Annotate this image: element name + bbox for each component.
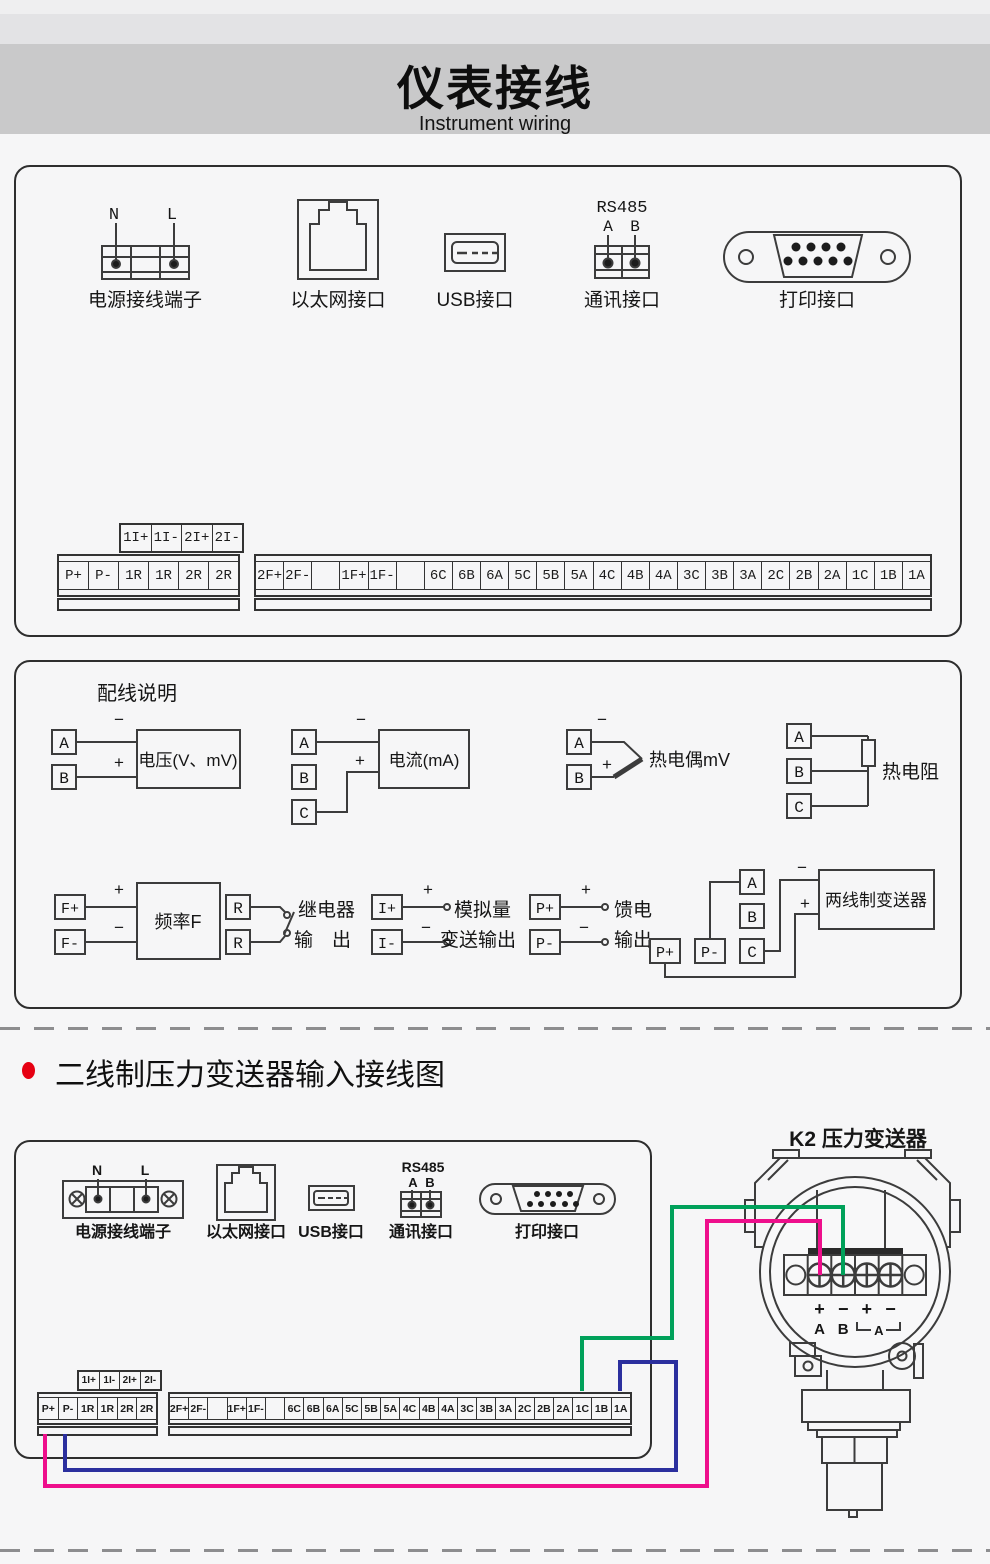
feed-label-1: 馈电 xyxy=(614,899,652,921)
terminal-cell: 1A xyxy=(903,562,930,589)
terminal-cell: P+ xyxy=(59,562,89,589)
terminal-cell: 4C xyxy=(594,562,622,589)
analog-label-2: 变送输出 xyxy=(440,929,516,951)
terminal-cell: 1F- xyxy=(369,562,397,589)
terminal-a-label: A xyxy=(814,1321,825,1338)
term-c: C xyxy=(747,944,757,962)
ethernet-icon xyxy=(217,1165,275,1220)
term-p-plus: P+ xyxy=(536,901,554,918)
terminal-cell: 6A xyxy=(324,1398,343,1419)
term-a: A xyxy=(574,735,584,753)
terminal-rail xyxy=(57,598,240,611)
terminal-cell: 2I+ xyxy=(182,525,213,551)
power-label: 电源接线端子 xyxy=(88,289,202,311)
panel-connectors: N L 电源接线端子 以太网接口 USB接口 RS485 xyxy=(14,165,962,637)
terminal-cell: 6C xyxy=(285,1398,304,1419)
terminal-cell: 2A xyxy=(554,1398,573,1419)
terminal-cell: 2R xyxy=(118,1398,138,1419)
terminal-cell: 1R xyxy=(98,1398,118,1419)
term-b: B xyxy=(59,770,69,788)
ethernet-label: 以太网接口 xyxy=(206,1222,286,1241)
page-header: 仪表接线 Instrument wiring xyxy=(0,44,990,134)
top-strip xyxy=(0,0,990,14)
plus-sign: + xyxy=(114,882,124,901)
terminal-cell: 6B xyxy=(304,1398,323,1419)
term-f-plus: F+ xyxy=(61,901,79,918)
diagram-two-wire-transmitter: A B C P+ P- − + 两线制变送器 xyxy=(650,860,934,977)
terminal-aux-row: 1I+1I-2I+2I- xyxy=(119,523,244,553)
diagram-voltage: A B − + 电压(V、mV) xyxy=(52,712,240,789)
terminal-cell: 2R xyxy=(137,1398,156,1419)
terminal-cell: 2I+ xyxy=(120,1372,141,1389)
terminal-cell: 3B xyxy=(706,562,734,589)
terminal-cell: 2F+ xyxy=(256,562,284,589)
minus-sign: − xyxy=(597,712,607,731)
terminal-cell: 2R xyxy=(209,562,238,589)
transmitter-title: K2 压力变送器 xyxy=(789,1127,928,1151)
section-heading: 二线制压力变送器输入接线图 xyxy=(55,1050,445,1094)
minus-sign: − xyxy=(114,712,124,731)
terminal-aux-row: 1I+1I-2I+2I- xyxy=(77,1370,162,1391)
terminal-cell: P- xyxy=(89,562,119,589)
diagram-current: A B C − + 电流(mA) xyxy=(292,712,469,824)
terminal-cell: 1R xyxy=(149,562,179,589)
ethernet-icon xyxy=(298,200,378,279)
plus-sign: + xyxy=(581,882,591,901)
page-subtitle: Instrument wiring xyxy=(0,113,990,136)
terminal-cell: 3A xyxy=(496,1398,515,1419)
terminal-plus-1: + xyxy=(814,1299,825,1319)
term-a: A xyxy=(747,875,757,893)
terminal-cell: 3C xyxy=(458,1398,477,1419)
wiring-guide-svg: 配线说明 A B − + 电压(V、mV) A B C − + 电流(mA) xyxy=(16,662,960,1007)
relay-label-2: 输 出 xyxy=(294,929,351,951)
terminal-cell: 3A xyxy=(734,562,762,589)
terminal-cell: 2B xyxy=(790,562,818,589)
term-p-plus: P+ xyxy=(656,945,674,962)
printer-label: 打印接口 xyxy=(515,1222,579,1241)
terminal-cell: 2A xyxy=(819,562,847,589)
terminal-cell: P- xyxy=(59,1398,79,1419)
terminal-cell: 2B xyxy=(535,1398,554,1419)
power-pin-l: L xyxy=(141,1162,150,1178)
diagram-analog-out: I+ I- + − 模拟量 变送输出 xyxy=(372,882,516,954)
terminal-minus-1: − xyxy=(838,1299,849,1319)
terminal-cell: 6C xyxy=(425,562,453,589)
terminal-block-left: P+P-1R1R2R2R xyxy=(37,1392,158,1436)
top-strip-2 xyxy=(0,14,990,44)
term-b: B xyxy=(794,764,804,782)
term-c: C xyxy=(299,805,309,823)
terminal-cell: 2I- xyxy=(213,525,243,551)
terminal-cell: 4B xyxy=(420,1398,439,1419)
usb-label: USB接口 xyxy=(298,1222,364,1241)
power-pin-n: N xyxy=(109,206,119,225)
printer-port-icon xyxy=(724,232,910,282)
terminal-cell xyxy=(312,562,340,589)
power-pin-l: L xyxy=(167,206,177,225)
pressure-transmitter: K2 压力变送器 + − + − A B A xyxy=(690,1118,990,1530)
comm-pin-b: B xyxy=(630,218,640,236)
transmitter-body xyxy=(745,1150,960,1247)
terminal-cell: 6A xyxy=(481,562,509,589)
term-b: B xyxy=(299,770,309,788)
diagram-feed-out: P+ P- + − 馈电 输出 xyxy=(530,882,652,954)
terminal-cell: 1I+ xyxy=(79,1372,100,1389)
terminal-plus-2: + xyxy=(862,1299,873,1319)
voltage-label: 电压(V、mV) xyxy=(138,751,237,770)
minus-sign: − xyxy=(797,860,807,879)
feed-label-2: 输出 xyxy=(614,929,652,951)
terminal-cell: 1I- xyxy=(152,525,183,551)
terminal-cell: 5B xyxy=(537,562,565,589)
relay-label-1: 继电器 xyxy=(298,899,355,921)
terminal-cell: 1R xyxy=(119,562,149,589)
terminal-cell: 1B xyxy=(875,562,903,589)
plus-sign: + xyxy=(114,755,124,774)
terminal-cell: 2F- xyxy=(284,562,312,589)
term-b: B xyxy=(747,909,757,927)
terminal-cell: 3B xyxy=(477,1398,496,1419)
minus-sign: − xyxy=(356,712,366,731)
power-terminal-icon: N L xyxy=(102,206,189,279)
terminal-cell: 5A xyxy=(381,1398,400,1419)
plus-sign: + xyxy=(602,757,612,776)
printer-label: 打印接口 xyxy=(779,289,855,311)
minus-sign: − xyxy=(114,920,124,939)
rs485-label: RS485 xyxy=(402,1159,445,1175)
plus-sign: + xyxy=(423,882,433,901)
terminal-cell: 2I- xyxy=(141,1372,161,1389)
term-f-minus: F- xyxy=(61,936,79,953)
transmitter-terminals: + − + − A B A xyxy=(784,1190,926,1338)
usb-label: USB接口 xyxy=(436,289,513,311)
minus-sign: − xyxy=(421,920,431,939)
panel-recorder: N L 电源接线端子 以太网接口 USB接口 xyxy=(14,1140,652,1459)
terminal-cell: 5B xyxy=(362,1398,381,1419)
page-title: 仪表接线 xyxy=(0,50,990,119)
term-i-plus: I+ xyxy=(378,901,396,918)
comm-label: 通讯接口 xyxy=(584,289,660,311)
terminal-cell: 2C xyxy=(762,562,790,589)
wiring-guide-title: 配线说明 xyxy=(97,682,177,705)
terminal-block-left: P+P-1R1R2R2R xyxy=(57,554,240,611)
terminal-cell: 2F- xyxy=(189,1398,208,1419)
connector-icons-svg: N L 电源接线端子 以太网接口 USB接口 RS485 xyxy=(16,167,960,517)
transmitter-mount xyxy=(790,1343,923,1517)
terminal-rail xyxy=(254,598,932,611)
terminal-cell: 1F+ xyxy=(340,562,368,589)
comm-port-icon: RS485 A B xyxy=(595,199,649,278)
rtd-label: 热电阻 xyxy=(882,761,939,783)
term-p-minus: P- xyxy=(701,945,719,962)
term-p-minus: P- xyxy=(536,936,554,953)
terminal-cell: 1A xyxy=(612,1398,630,1419)
term-r2: R xyxy=(233,935,243,953)
terminal-cell: 1C xyxy=(573,1398,592,1419)
term-a: A xyxy=(299,735,309,753)
term-a: A xyxy=(59,735,69,753)
terminal-cell: 1I+ xyxy=(121,525,152,551)
terminal-rail xyxy=(168,1426,632,1436)
terminal-cell: 4B xyxy=(622,562,650,589)
two-wire-label: 两线制变送器 xyxy=(825,891,927,910)
comm-pin-b: B xyxy=(425,1175,434,1190)
comm-pin-a: A xyxy=(603,218,613,236)
terminal-cell: 1F+ xyxy=(228,1398,247,1419)
terminal-block-right: 2F+2F-1F+1F-6C6B6A5C5B5A4C4B4A3C3B3A2C2B… xyxy=(168,1392,632,1436)
current-label: 电流(mA) xyxy=(389,751,460,770)
terminal-cell: P+ xyxy=(39,1398,59,1419)
terminal-cell: 2C xyxy=(516,1398,535,1419)
terminal-cell: 1R xyxy=(78,1398,98,1419)
dashed-divider xyxy=(0,1027,990,1030)
terminal-b-label: B xyxy=(838,1321,849,1338)
terminal-cell: 3C xyxy=(678,562,706,589)
thermocouple-label: 热电偶mV xyxy=(649,750,730,770)
usb-icon xyxy=(445,234,505,271)
comm-port-icon: RS485 A B xyxy=(401,1159,445,1217)
dashed-divider-bottom xyxy=(0,1549,990,1552)
terminal-cell: 4A xyxy=(650,562,678,589)
terminal-cell: 4A xyxy=(439,1398,458,1419)
terminal-cell xyxy=(397,562,425,589)
term-r1: R xyxy=(233,900,243,918)
plus-sign: + xyxy=(800,896,810,915)
comm-label: 通讯接口 xyxy=(389,1222,453,1241)
connector-icons-small-svg: N L 电源接线端子 以太网接口 USB接口 xyxy=(16,1142,646,1252)
term-c: C xyxy=(794,799,804,817)
terminal-cell: 2F+ xyxy=(170,1398,189,1419)
terminal-cell: 4C xyxy=(400,1398,419,1419)
term-a: A xyxy=(794,729,804,747)
terminal-cell: 1B xyxy=(592,1398,611,1419)
terminal-cell: 1F- xyxy=(247,1398,266,1419)
printer-port-icon xyxy=(480,1184,615,1214)
terminal-cell xyxy=(208,1398,227,1419)
terminal-cell: 5C xyxy=(343,1398,362,1419)
terminal-cell xyxy=(266,1398,285,1419)
ethernet-label: 以太网接口 xyxy=(290,289,385,311)
term-b: B xyxy=(574,770,584,788)
diagram-thermocouple: A B − + 热电偶mV xyxy=(567,712,730,789)
terminal-block-right: 2F+2F-1F+1F-6C6B6A5C5B5A4C4B4A3C3B3A2C2B… xyxy=(254,554,932,611)
terminal-cell: 1C xyxy=(847,562,875,589)
terminal-rail xyxy=(37,1426,158,1436)
diagram-rtd: A B C 热电阻 xyxy=(787,724,939,818)
terminal-bracket-a-label: A xyxy=(874,1323,884,1338)
plus-sign: + xyxy=(355,753,365,772)
diagram-relay: R R 继电器 输 出 xyxy=(226,895,355,954)
minus-sign: − xyxy=(579,920,589,939)
term-i-minus: I- xyxy=(378,936,396,953)
power-terminal-icon: N L xyxy=(63,1162,183,1218)
terminal-cell: 2R xyxy=(179,562,209,589)
terminal-cell: 5C xyxy=(509,562,537,589)
analog-label-1: 模拟量 xyxy=(454,899,511,921)
comm-pin-a: A xyxy=(408,1175,418,1190)
red-bullet-icon xyxy=(22,1062,35,1079)
usb-icon xyxy=(309,1186,354,1210)
terminal-minus-2: − xyxy=(885,1299,896,1319)
diagram-frequency: F+ F- + − 频率F xyxy=(55,882,220,959)
terminal-cell: 6B xyxy=(453,562,481,589)
terminal-cell: 1I- xyxy=(100,1372,121,1389)
panel-wiring-guide: 配线说明 A B − + 电压(V、mV) A B C − + 电流(mA) xyxy=(14,660,962,1009)
terminal-cell: 5A xyxy=(565,562,593,589)
power-label: 电源接线端子 xyxy=(75,1222,171,1241)
rs485-label: RS485 xyxy=(596,199,647,218)
frequency-label: 频率F xyxy=(155,912,202,932)
power-pin-n: N xyxy=(92,1162,102,1178)
